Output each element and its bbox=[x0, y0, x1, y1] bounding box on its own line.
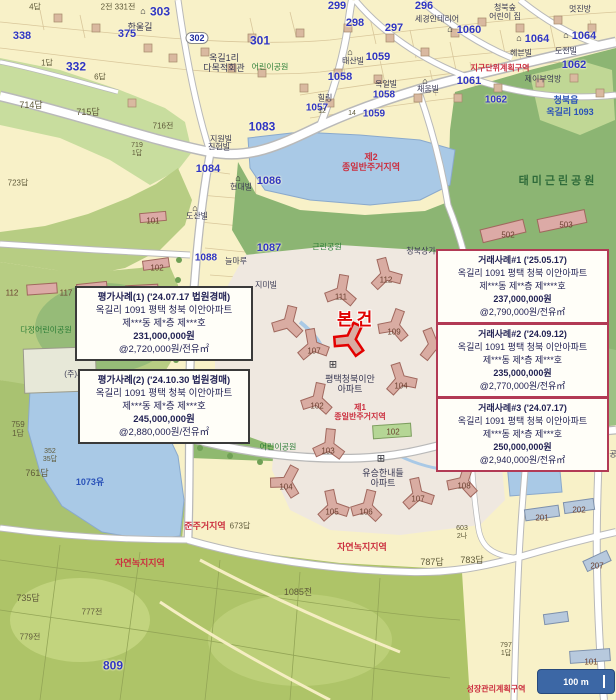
appraisal-case-1-unit: 제***동 제*층 제***호 bbox=[79, 317, 249, 330]
building bbox=[373, 423, 412, 439]
building bbox=[128, 99, 136, 107]
building bbox=[494, 84, 502, 92]
building bbox=[92, 24, 100, 32]
map-canvas[interactable]: .b-apt{fill:#d9aca2;stroke:#a0685e;strok… bbox=[0, 0, 616, 700]
appraisal-case-2-address: 옥길리 1091 평택 청북 이안아파트 bbox=[82, 387, 246, 400]
scale-bar-label: 100 m bbox=[563, 677, 589, 687]
transaction-case-2-box: 거래사례#2 ('24.09.12) 옥길리 1091 평택 청북 이안아파트 … bbox=[436, 323, 609, 398]
building bbox=[140, 211, 167, 222]
building bbox=[258, 69, 266, 77]
building bbox=[414, 94, 422, 102]
building bbox=[326, 99, 334, 107]
scale-bar[interactable]: 100 m bbox=[537, 669, 615, 694]
building bbox=[169, 54, 177, 62]
transaction-case-2-unit: 제***동 제*층 제***호 bbox=[440, 354, 605, 367]
building bbox=[27, 283, 58, 295]
building bbox=[478, 18, 486, 26]
transaction-case-1-unit: 제***동 제**층 제****호 bbox=[440, 280, 605, 293]
building bbox=[344, 24, 352, 32]
transaction-case-1-title: 거래사례#1 ('25.05.17) bbox=[440, 254, 605, 267]
building bbox=[296, 29, 304, 37]
building bbox=[386, 34, 394, 42]
building bbox=[300, 84, 308, 92]
appraisal-case-2-unit-price: @2,880,000원/전유㎡ bbox=[82, 426, 246, 439]
appraisal-case-1-title: 평가사례(1) ('24.07.17 법원경매) bbox=[79, 291, 249, 304]
transaction-case-1-price: 237,000,000원 bbox=[440, 293, 605, 306]
appraisal-case-2-price: 245,000,000원 bbox=[82, 413, 246, 426]
building bbox=[570, 74, 578, 82]
transaction-case-3-address: 옥길리 1091 평택 청북 이안아파트 bbox=[440, 415, 605, 428]
transaction-case-3-price: 250,000,000원 bbox=[440, 441, 605, 454]
scale-bar-tick bbox=[603, 675, 605, 688]
transaction-case-2-unit-price: @2,770,000원/전유㎡ bbox=[440, 380, 605, 393]
building bbox=[144, 44, 152, 52]
building bbox=[554, 16, 562, 24]
building bbox=[248, 34, 256, 42]
transaction-case-2-price: 235,000,000원 bbox=[440, 367, 605, 380]
transaction-case-3-title: 거래사례#3 ('24.07.17) bbox=[440, 402, 605, 415]
building bbox=[451, 29, 459, 37]
transaction-case-1-address: 옥길리 1091 평택 청북 이안아파트 bbox=[440, 267, 605, 280]
subject-marker: 본건 bbox=[337, 305, 376, 330]
building bbox=[201, 48, 209, 56]
appraisal-case-1-unit-price: @2,720,000원/전유㎡ bbox=[79, 343, 249, 356]
transaction-case-2-title: 거래사례#2 ('24.09.12) bbox=[440, 328, 605, 341]
building bbox=[596, 89, 604, 97]
building bbox=[516, 24, 524, 32]
appraisal-case-2-box: 평가사례(2) ('24.10.30 법원경매) 옥길리 1091 평택 청북 … bbox=[78, 369, 250, 444]
appraisal-case-2-unit: 제***동 제*층 제***호 bbox=[82, 400, 246, 413]
building bbox=[228, 64, 236, 72]
transaction-case-3-box: 거래사례#3 ('24.07.17) 옥길리 1091 평택 청북 이안아파트 … bbox=[436, 397, 609, 472]
building bbox=[334, 69, 342, 77]
building bbox=[588, 24, 596, 32]
appraisal-case-2-title: 평가사례(2) ('24.10.30 법원경매) bbox=[82, 374, 246, 387]
transaction-case-1-unit-price: @2,790,000원/전유㎡ bbox=[440, 306, 605, 319]
transaction-case-2-address: 옥길리 1091 평택 청북 이안아파트 bbox=[440, 341, 605, 354]
building bbox=[374, 75, 382, 83]
appraisal-case-1-box: 평가사례(1) ('24.07.17 법원경매) 옥길리 1091 평택 청북 … bbox=[75, 286, 253, 361]
field-patch-1 bbox=[10, 578, 150, 662]
appraisal-case-1-price: 231,000,000원 bbox=[79, 330, 249, 343]
building bbox=[54, 14, 62, 22]
building bbox=[454, 94, 462, 102]
building bbox=[421, 48, 429, 56]
transaction-case-3-unit-price: @2,940,000원/전유㎡ bbox=[440, 454, 605, 467]
transaction-case-3-unit: 제***동 제*층 제***호 bbox=[440, 428, 605, 441]
building bbox=[570, 649, 611, 664]
transaction-case-1-box: 거래사례#1 ('25.05.17) 옥길리 1091 평택 청북 이안아파트 … bbox=[436, 249, 609, 324]
building bbox=[536, 79, 544, 87]
appraisal-case-1-address: 옥길리 1091 평택 청북 이안아파트 bbox=[79, 304, 249, 317]
